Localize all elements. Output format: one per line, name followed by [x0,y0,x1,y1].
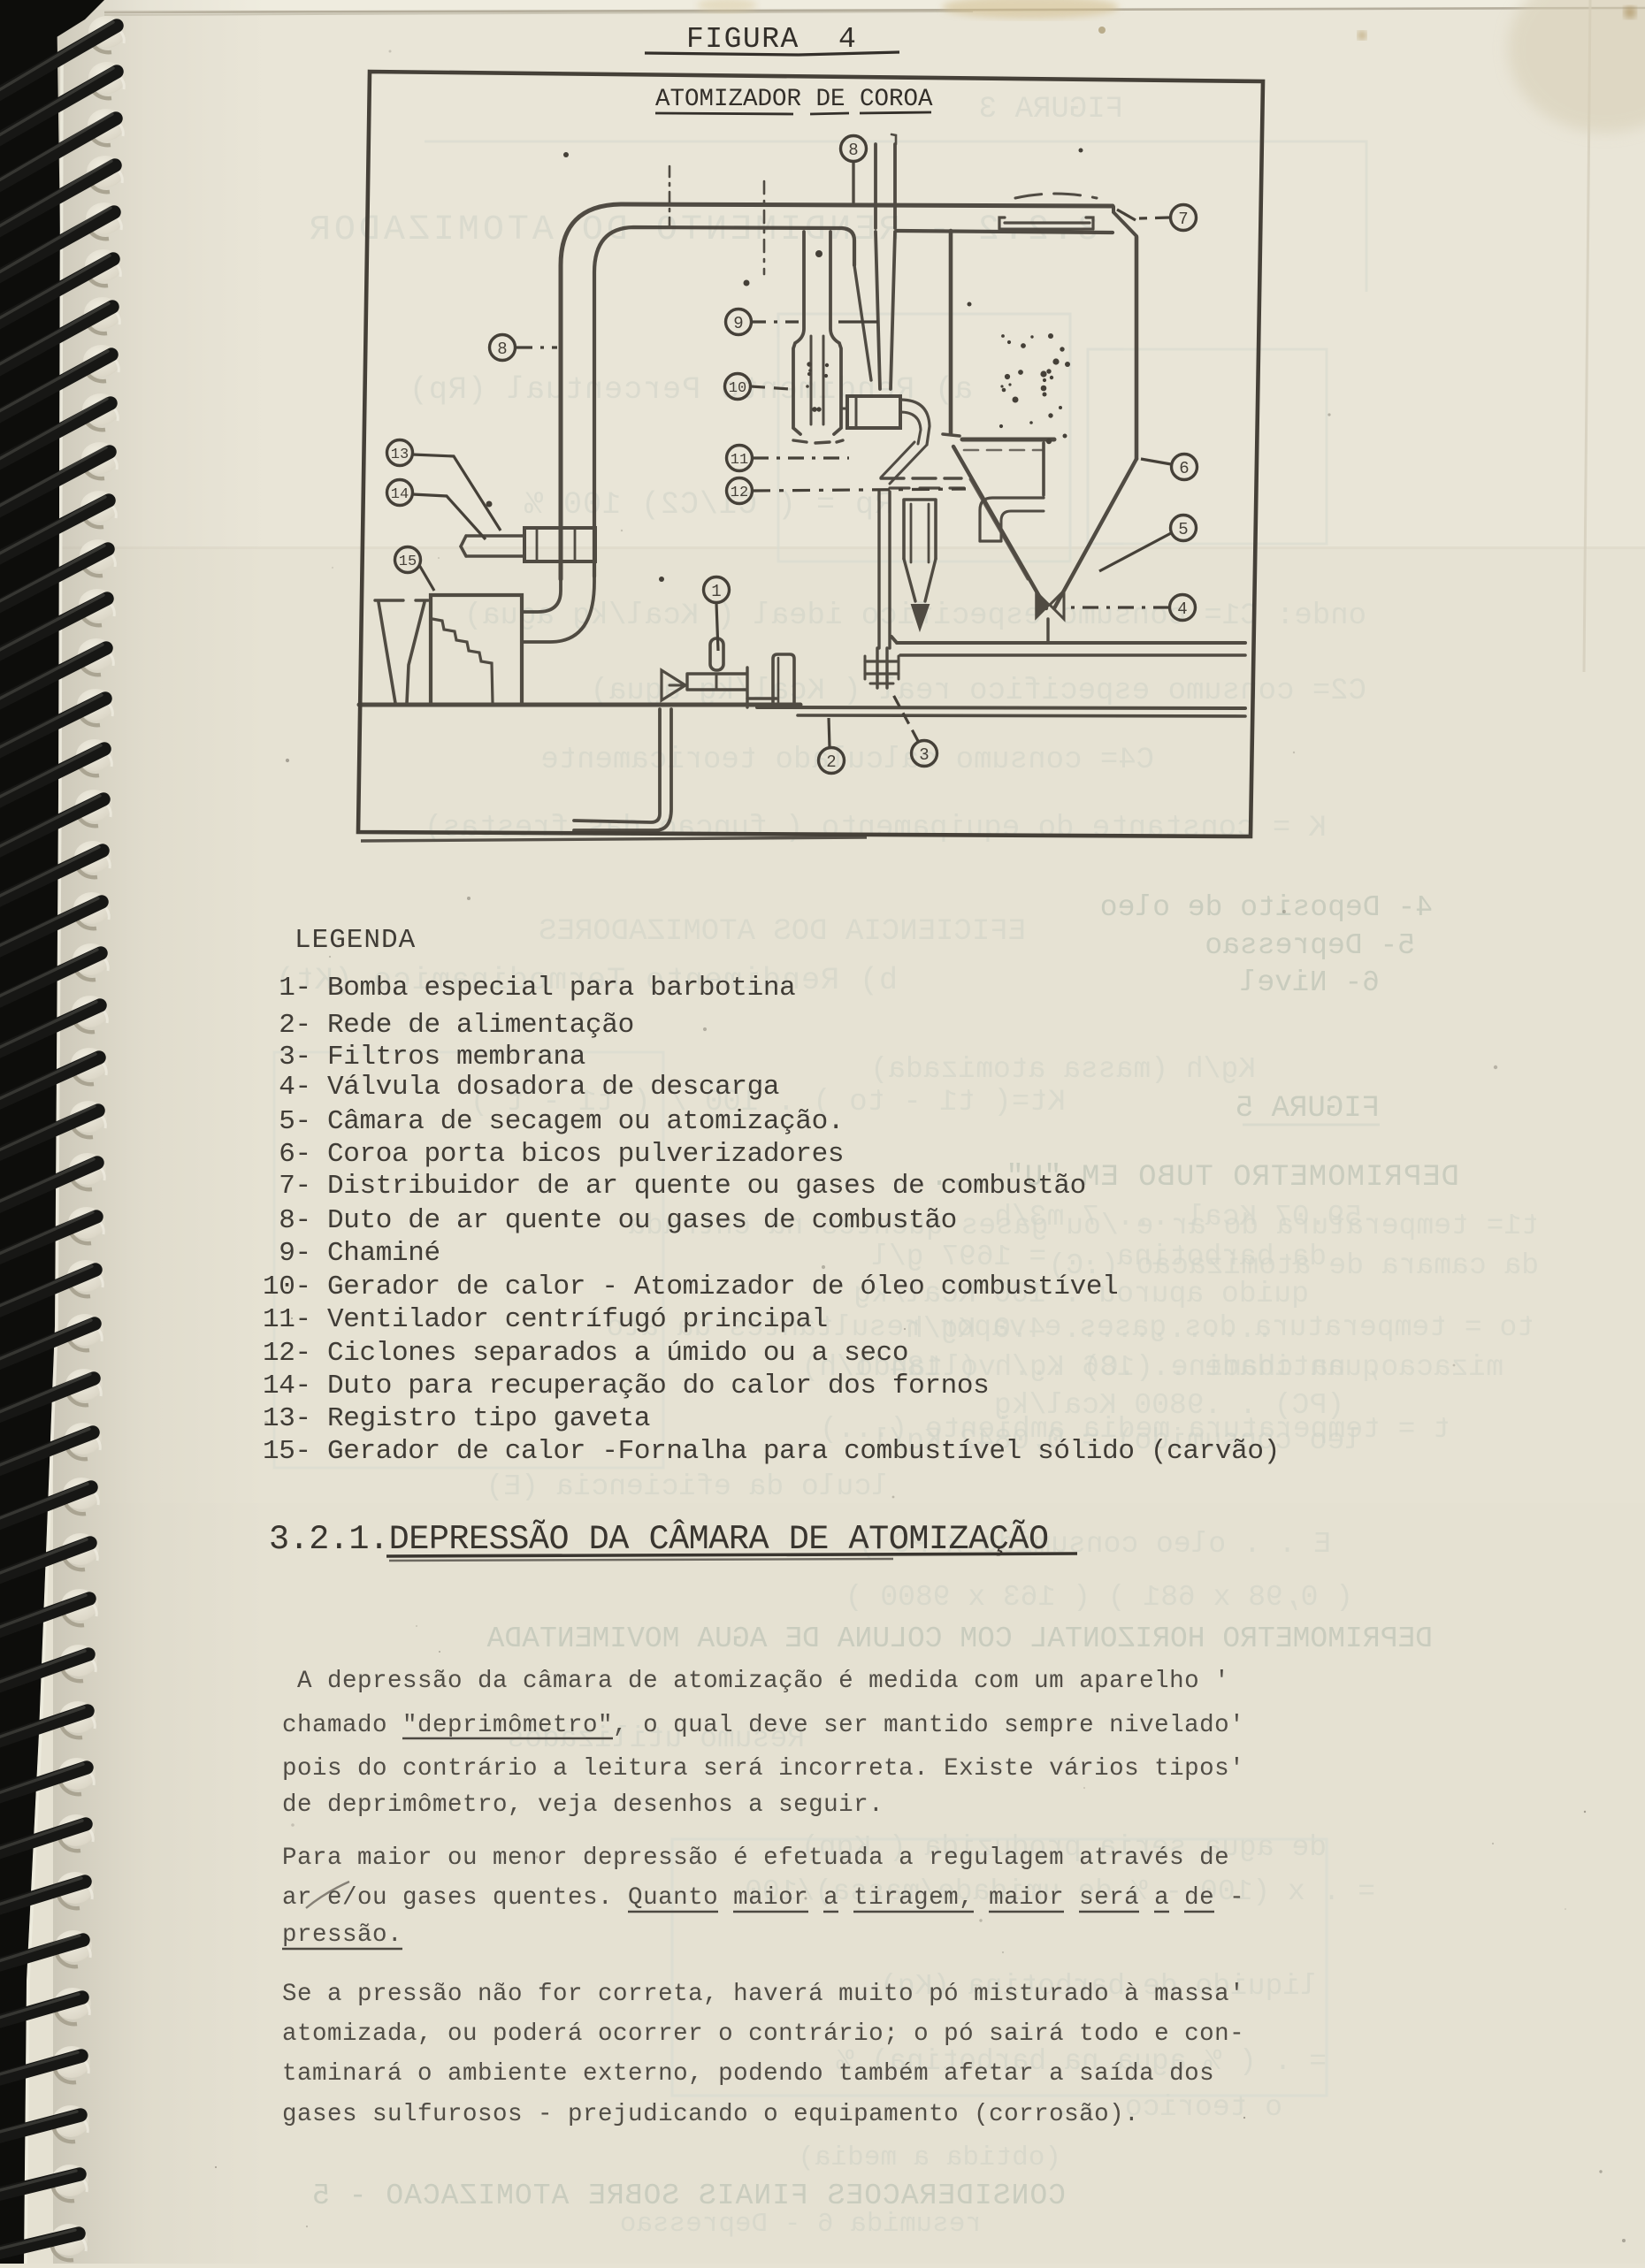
svg-text:............ 4.0 Kg/h: ............ 4.0 Kg/h [906,1313,1274,1346]
svg-text:12- Ciclones separados a úmido: 12- Ciclones separados a úmido ou a seco [263,1338,908,1369]
svg-text:3- Filtros membrana: 3- Filtros membrana [263,1042,585,1073]
svg-text:14- Duto para recuperação do c: 14- Duto para recuperação do calor dos f… [263,1371,989,1401]
svg-text:FIGURA 3: FIGURA 3 [979,93,1123,126]
svg-text:13: 13 [391,447,409,463]
svg-text:EFICIENCIA DOS ATOMIZADORES: EFICIENCIA DOS ATOMIZADORES [539,915,1026,949]
svg-text:6- Coroa porta bicos pulveriza: 6- Coroa porta bicos pulverizadores [263,1139,844,1170]
svg-text:13- Registro tipo gaveta: 13- Registro tipo gaveta [263,1403,650,1434]
svg-text:4: 4 [1177,599,1187,619]
svg-text:DEPRIMOMETRO HORIZONTAL COM: DEPRIMOMETRO HORIZONTAL COM COLUNA DE AG… [486,1623,1433,1655]
svg-text:Kg/h (massa atomizada): Kg/h (massa atomizada) [870,1053,1256,1086]
svg-text:9: 9 [733,314,743,333]
svg-text:A depressão da câmara de atomi: A depressão da câmara de atomização é me… [282,1668,1229,1695]
svg-text:a) Rendimento Percentual (Rp): a) Rendimento Percentual (Rp) [409,372,973,408]
svg-text:(PC) . .9800 Kcal/kg: (PC) . .9800 Kcal/kg [994,1389,1344,1422]
svg-text:de deprimômetro, veja desenhos: de deprimômetro, veja desenhos a seguir. [282,1791,884,1819]
svg-text:11: 11 [731,452,748,469]
svg-text:1- Bomba especial para barboti: 1- Bomba especial para barbotina [263,973,795,1004]
svg-text:1: 1 [711,582,721,601]
svg-text:lculo da eficiencia (E): lculo da eficiencia (E) [486,1470,889,1503]
svg-text:FIGURA 5: FIGURA 5 [1236,1092,1380,1126]
svg-text:chamado "deprimômetro", o qual: chamado "deprimômetro", o qual deve ser … [282,1712,1244,1739]
svg-text:ATOMIZADOR DE COROA: ATOMIZADOR DE COROA [655,86,933,113]
svg-text:12: 12 [731,485,748,501]
svg-text:Para maior ou menor depressão: Para maior ou menor depressão é efetuada… [282,1844,1229,1872]
svg-text:3: 3 [919,745,929,765]
svg-text:10- Gerador de calor - Atomiza: 10- Gerador de calor - Atomizador de óle… [263,1271,1118,1302]
svg-text:taminará o ambiente externo, p: taminará o ambiente externo, podendo tam… [282,2060,1214,2088]
svg-text:2- Rede de alimentação: 2- Rede de alimentação [263,1010,634,1041]
svg-text:5- Depressao: 5- Depressao [1205,929,1415,962]
svg-text:5- Câmara de secagem ou atomiz: 5- Câmara de secagem ou atomização. [263,1106,844,1137]
svg-text:14: 14 [391,486,409,503]
svg-text:(obtida a media): (obtida a media) [798,2142,1061,2173]
svg-text:8: 8 [848,141,858,160]
svg-text:4- Deposito de oleo: 4- Deposito de oleo [1100,891,1433,924]
svg-text:6- Nivel: 6- Nivel [1240,966,1380,999]
svg-text:pois do contrário a leitura se: pois do contrário a leitura será incorre… [282,1755,1244,1783]
svg-text:10: 10 [729,380,746,397]
svg-text:4: 4 [838,23,856,56]
svg-text:C4= consumo calculado teoricam: C4= consumo calculado teoricamente [540,744,1154,777]
svg-text:15- Gerador de calor -Fornalha: 15- Gerador de calor -Fornalha para comb… [263,1436,1280,1467]
svg-text:pressão.: pressão. [282,1921,402,1949]
svg-text:Rp = ( C1/C2) 100 %: Rp = ( C1/C2) 100 % [524,487,893,523]
svg-text:FIGURA: FIGURA [686,23,800,56]
svg-text:gases sulfurosos - prejudicand: gases sulfurosos - prejudicando o equipa… [282,2101,1139,2128]
svg-text:Se a pressão não for correta,: Se a pressão não for correta, haverá mui… [282,1981,1244,2008]
svg-text:4- Válvula dosadora de descarg: 4- Válvula dosadora de descarga [263,1072,779,1103]
svg-text:ar e/ou gases quentes. Quanto: ar e/ou gases quentes. Quanto maior a ti… [282,1884,1244,1912]
svg-text:LEGENDA: LEGENDA [295,925,416,956]
svg-text:7- Distribuidor de ar quente o: 7- Distribuidor de ar quente ou gases de… [263,1171,1086,1202]
svg-text:11- Ventilador centrífugó prin: 11- Ventilador centrífugó principal [263,1304,828,1335]
svg-text:5: 5 [1178,520,1188,539]
svg-text:8- Duto de ar quente ou gases: 8- Duto de ar quente ou gases de combust… [263,1205,957,1236]
svg-text:( 0,98 x 681 ) ( 163 x 9800 ): ( 0,98 x 681 ) ( 163 x 9800 ) [845,1581,1353,1614]
svg-text:CONSIDERACOES FINAIS SOBRE ATO: CONSIDERACOES FINAIS SOBRE ATOMIZACAO - … [311,2180,1066,2212]
svg-text:resumida 6 - Depressao: resumida 6 - Depressao [620,2209,982,2240]
svg-text:59.07 Kcal ... 7 m3/h: 59.07 Kcal ... 7 m3/h [994,1201,1362,1233]
svg-text:6: 6 [1179,459,1189,478]
svg-text:15: 15 [399,554,417,570]
svg-text:da barbotina .. = 1697 g/l: da barbotina .. = 1697 g/l [871,1241,1327,1273]
svg-text:8: 8 [497,340,507,359]
svg-text:atomizada, ou poderá ocorrer o: atomizada, ou poderá ocorrer o contrário… [282,2020,1244,2048]
svg-text:9- Chaminé: 9- Chaminé [263,1238,440,1269]
svg-text:2: 2 [826,752,836,772]
svg-text:7: 7 [1178,210,1188,229]
